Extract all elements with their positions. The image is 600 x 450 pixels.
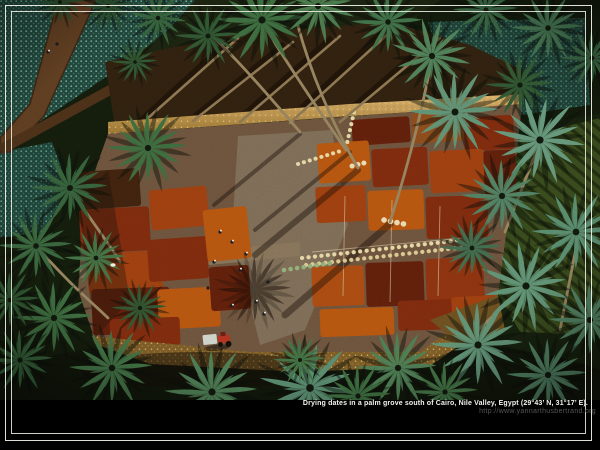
framed-photo-slide: Drying dates in a palm grove south of Ca…: [0, 0, 600, 450]
caption-block: Drying dates in a palm grove south of Ca…: [303, 400, 588, 416]
credit-url: http://www.yannarthusbertrand.org: [303, 408, 596, 415]
photo-caption: Drying dates in a palm grove south of Ca…: [303, 400, 588, 407]
aerial-photo: [0, 0, 600, 400]
aerial-photo-art: [0, 0, 600, 400]
